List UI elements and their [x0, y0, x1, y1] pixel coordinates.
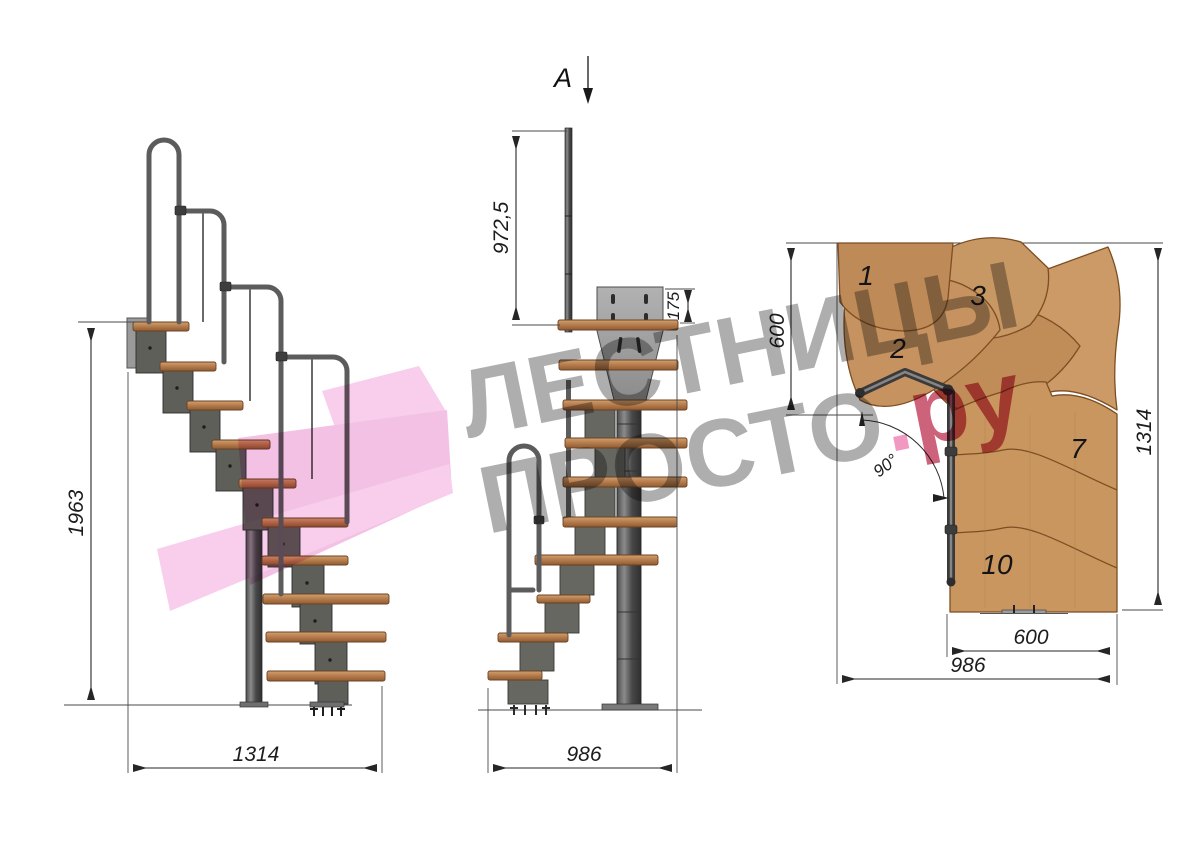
dimension-rail-height: 972,5 [490, 131, 567, 325]
drawing-canvas: 1963 1314 A [0, 0, 1200, 849]
column-base-flange-front [602, 704, 658, 710]
dim-label-1314-side: 1314 [233, 743, 280, 766]
dim-label-986-plan: 986 [950, 654, 985, 677]
step-number-7: 7 [1070, 433, 1087, 464]
section-arrow-icon [583, 88, 593, 104]
dim-label-1963: 1963 [65, 489, 88, 536]
arc-arrow-icon [933, 494, 949, 502]
section-letter: A [552, 63, 572, 93]
dimension-side-height: 1963 [65, 322, 140, 699]
watermark-ru: ру [900, 340, 1032, 467]
handrail-post [565, 128, 572, 332]
dimension-plan-length: 1314 [1133, 249, 1158, 604]
section-marker: A [552, 56, 593, 104]
step-number-10: 10 [981, 549, 1013, 580]
dim-label-1314-plan: 1314 [1133, 409, 1156, 456]
anchor-bolts [310, 707, 345, 716]
dim-label-972-5: 972,5 [490, 201, 513, 254]
dimension-flight-width: 600 [953, 626, 1109, 651]
dim-label-986-front: 986 [566, 743, 601, 766]
column-base-flange [240, 702, 268, 707]
dim-label-600-bottom: 600 [1013, 626, 1048, 649]
dimension-plan-width: 986 [843, 654, 1109, 679]
staircase-technical-drawing: 1963 1314 A [0, 0, 1200, 849]
